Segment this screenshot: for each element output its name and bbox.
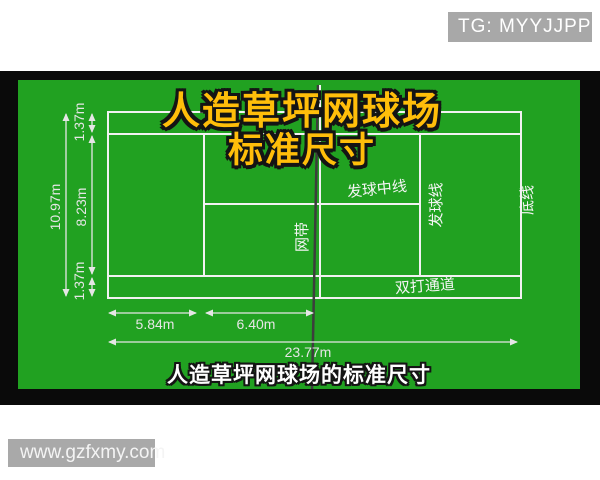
website-watermark: www.gzfxmy.com	[8, 439, 155, 467]
page-title-line2: 标准尺寸	[24, 132, 580, 170]
dimension-alley-width-bottom: 1.37m	[71, 251, 87, 311]
dimension-total-length: 23.77m	[273, 344, 343, 360]
dimension-singles-width: 8.23m	[73, 172, 89, 242]
tg-channel-badge: TG: MYYJJPP	[448, 12, 592, 42]
dimension-baseline-to-service: 5.84m	[125, 316, 185, 332]
label-net-band: 网带	[294, 215, 312, 259]
dimension-total-width: 10.97m	[47, 172, 63, 242]
video-frame: 1.37m 10.97m 8.23m 1.37m 网带 发球中线 发球线 底线 …	[0, 71, 600, 405]
page-title: 人造草坪网球场 标准尺寸	[24, 92, 580, 170]
bottom-caption: 人造草坪网球场的标准尺寸	[18, 359, 580, 389]
court-field: 1.37m 10.97m 8.23m 1.37m 网带 发球中线 发球线 底线 …	[18, 80, 580, 389]
label-baseline: 底线	[519, 178, 537, 222]
page-title-line1: 人造草坪网球场	[24, 92, 580, 132]
label-service-line: 发球线	[428, 175, 446, 235]
dimension-service-to-net: 6.40m	[226, 316, 286, 332]
